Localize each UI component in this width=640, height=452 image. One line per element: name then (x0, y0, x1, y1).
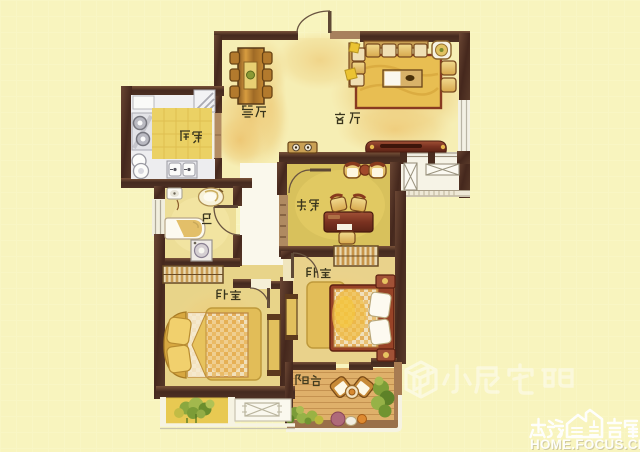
svg-text:HOME.FOCUS.CN: HOME.FOCUS.CN (530, 437, 640, 452)
